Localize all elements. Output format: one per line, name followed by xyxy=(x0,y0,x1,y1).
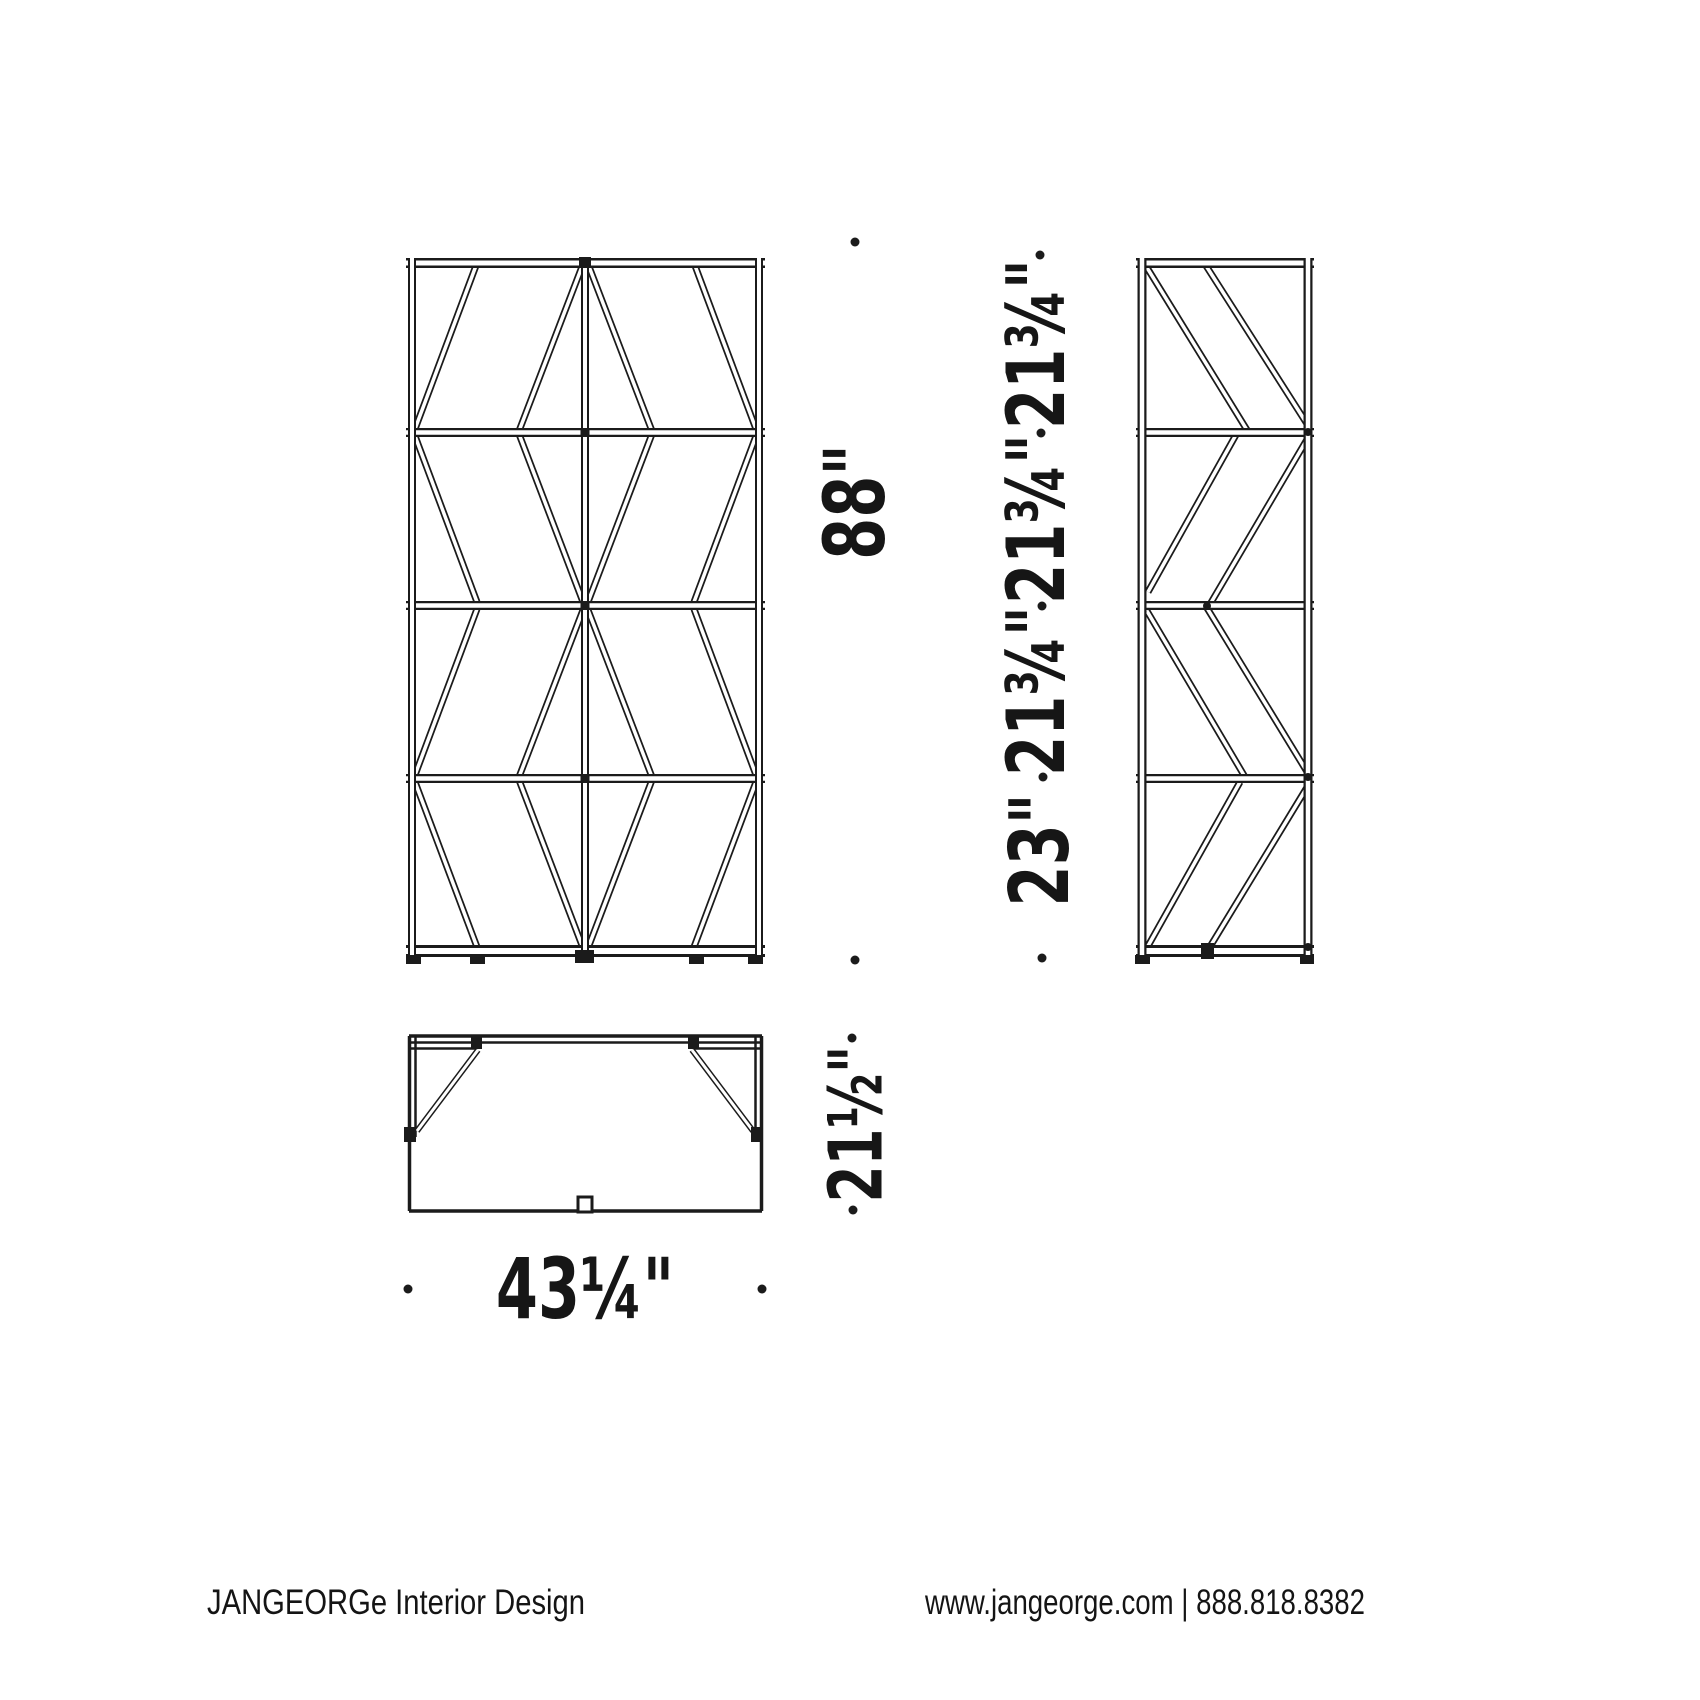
drawing-sheet: 88" 23" 21¾" 21¾" 21¾" 21½" 43¼" JANGEOR… xyxy=(0,0,1700,1700)
foot-block xyxy=(748,955,763,964)
joint-block xyxy=(751,1127,763,1142)
footer-contact: www.jangeorge.com | 888.818.8382 xyxy=(924,1583,1365,1622)
center-post-notch xyxy=(578,1197,592,1212)
joint-block xyxy=(579,257,591,268)
foot-block xyxy=(1300,955,1314,964)
joint-dot xyxy=(1203,602,1211,610)
dim-label-side-row-bottom: 23" xyxy=(992,794,1087,907)
joint-block xyxy=(471,1036,482,1049)
dimension-dot xyxy=(758,1285,767,1294)
dim-label-top-depth: 21½" xyxy=(814,1045,900,1202)
joint-dot xyxy=(1304,773,1312,781)
footer-brand: JANGEORGe Interior Design xyxy=(207,1583,585,1622)
dimension-dot xyxy=(404,1285,413,1294)
joint-dot xyxy=(1304,428,1312,436)
dimension-dot xyxy=(851,956,860,965)
foot-block xyxy=(406,955,421,964)
dim-label-front-height: 88" xyxy=(807,444,905,560)
foot-block xyxy=(1201,943,1214,959)
sheet-background xyxy=(0,0,1700,1700)
technical-drawing: 88" 23" 21¾" 21¾" 21¾" 21½" 43¼" JANGEOR… xyxy=(0,0,1700,1700)
dimension-dot xyxy=(1038,954,1047,963)
dimension-dot xyxy=(848,1034,857,1043)
dim-label-side-row-2: 21¾" xyxy=(991,606,1084,776)
dimension-dot xyxy=(851,238,860,247)
dimension-dot xyxy=(1036,251,1045,260)
dim-label-side-row-4: 21¾" xyxy=(991,259,1084,429)
foot-block xyxy=(1135,955,1150,964)
joint-block xyxy=(688,1036,699,1049)
joint-block xyxy=(581,428,590,437)
foot-block xyxy=(575,950,594,963)
foot-block xyxy=(689,955,704,964)
joint-block xyxy=(404,1127,416,1142)
joint-dot xyxy=(1304,943,1312,951)
dim-label-front-width: 43¼" xyxy=(496,1241,674,1339)
joint-block xyxy=(581,774,590,783)
joint-block xyxy=(581,601,590,610)
dimension-dot xyxy=(849,1206,858,1215)
foot-block xyxy=(470,955,485,964)
dim-label-side-row-3: 21¾" xyxy=(991,434,1084,604)
